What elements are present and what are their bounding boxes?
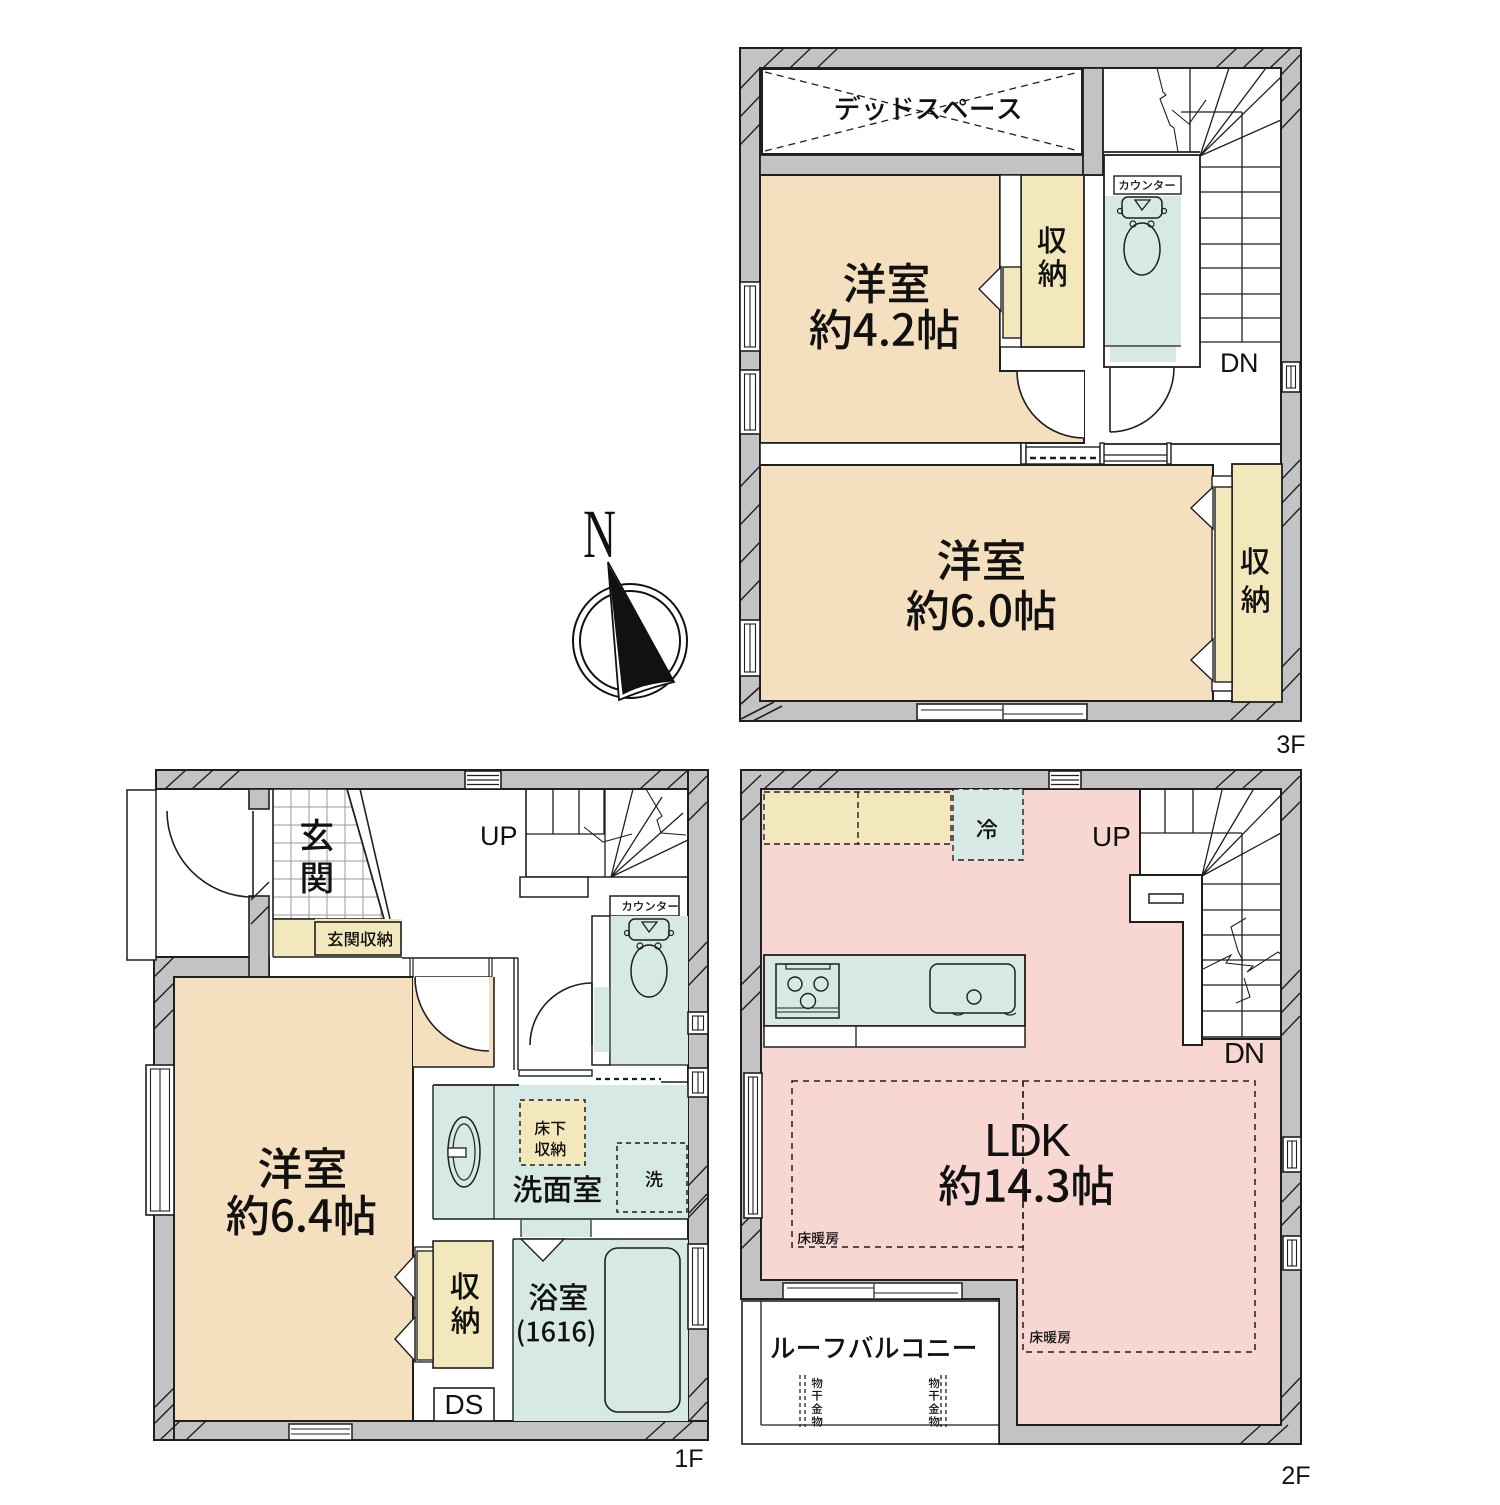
svg-text:3F: 3F: [1276, 731, 1305, 759]
svg-text:2F: 2F: [1281, 1462, 1310, 1490]
svg-text:DN: DN: [1220, 348, 1258, 378]
svg-text:LDK: LDK: [985, 1114, 1072, 1166]
svg-text:1F: 1F: [674, 1445, 703, 1473]
svg-text:UP: UP: [1092, 821, 1131, 852]
svg-text:N: N: [583, 496, 616, 573]
svg-text:DS: DS: [445, 1389, 484, 1420]
svg-text:UP: UP: [480, 821, 518, 851]
svg-text:DN: DN: [1224, 1038, 1264, 1070]
